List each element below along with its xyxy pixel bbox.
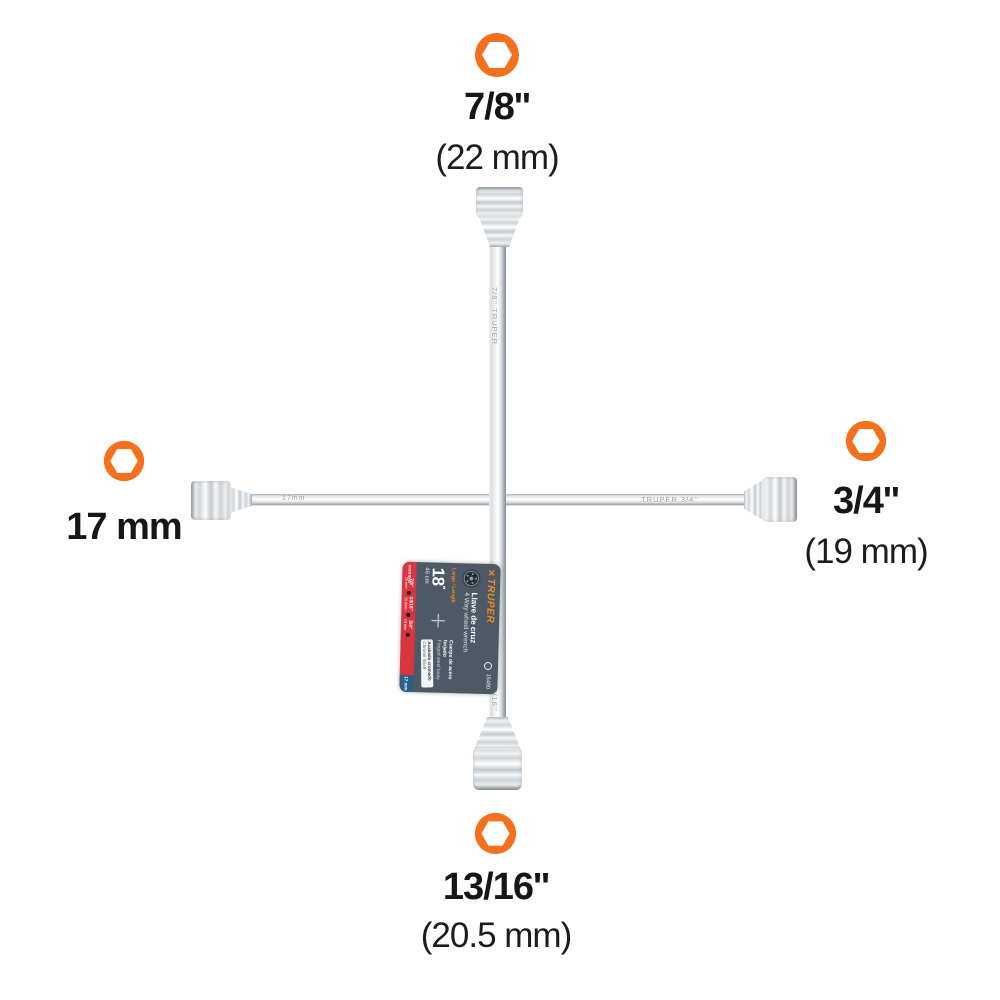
brand-logo: TRUPER (485, 578, 496, 623)
length-block: Largo / Length 18'' 46 cm (422, 567, 457, 603)
warranty-seal-icon (484, 662, 492, 670)
engraving-top-arm: 7/8'' TRUPER (490, 287, 499, 345)
callout-bottom-size: 13/16'' (386, 866, 606, 909)
engraving-right-arm: TRUPER 3/4'' (641, 495, 699, 504)
hex-socket-icon-left (102, 439, 146, 483)
engraving-left-arm: 17mm (282, 495, 305, 502)
socket-dot-icon (406, 632, 410, 636)
tag-spec-row: Largo / Length 18'' 46 cm Cuerpo de acer… (413, 562, 461, 693)
contains-label: CONTIENE (407, 565, 411, 575)
socket-dot-icon (406, 613, 410, 617)
wrench-bottom-neck (474, 717, 521, 750)
wheel-rim-icon (461, 568, 482, 589)
strip-size-1: 7/8''22 mm (405, 577, 414, 589)
product-code: 15480 (485, 674, 491, 689)
product-hang-tag: ✕ TRUPER 15480 Llave de cruz 4 Wa (399, 562, 500, 695)
wrench-left-neck (228, 486, 252, 514)
socket-13-16in (473, 748, 522, 790)
wrench-top-neck (478, 215, 521, 247)
strip-size-3: 3/4''19 mm (403, 619, 412, 631)
truper-x-icon: ✕ (486, 569, 495, 577)
product-annotation-page: { "colors": { "hex_icon": "#f4701d", "ta… (0, 0, 1000, 1000)
socket-17mm (191, 481, 231, 520)
cross-shape-icon (429, 605, 448, 637)
hex-socket-icon-top (473, 31, 521, 79)
strip-size-17mm: 17 mm (399, 675, 413, 692)
callout-bottom-metric: (20.5 mm) (376, 916, 616, 956)
callout-top-size: 7/8'' (387, 86, 607, 129)
length-label: Largo / Length (449, 568, 456, 603)
hex-socket-icon-bottom (473, 811, 518, 856)
product-name-es: Llave de cruz (468, 593, 479, 653)
socket-7-8in (476, 187, 523, 217)
strip-size-2: 13/16''20.5mm (404, 596, 413, 611)
body-material-en: Forged steel body (434, 640, 441, 688)
tag-name-row: Llave de cruz 4 Way wheel wrench (458, 563, 483, 694)
body-material-es: Cuerpo de acero forjado (440, 640, 453, 688)
length-value: 18'' (429, 567, 451, 602)
callout-top-metric: (22 mm) (377, 138, 617, 178)
finish-label: Acabado cromado Chrome finish (421, 639, 433, 687)
socket-3-4in (763, 477, 797, 522)
hex-socket-icon-right (844, 419, 888, 463)
tag-logo-row: ✕ TRUPER 15480 (480, 564, 500, 694)
callout-right-metric: (19 mm) (746, 532, 986, 572)
body-material-block: Cuerpo de acero forjado Forged steel bod… (420, 639, 453, 688)
wrench-right-arm (505, 494, 748, 505)
socket-dot-icon (407, 590, 411, 594)
finish-es: Acabado cromado (427, 641, 432, 685)
